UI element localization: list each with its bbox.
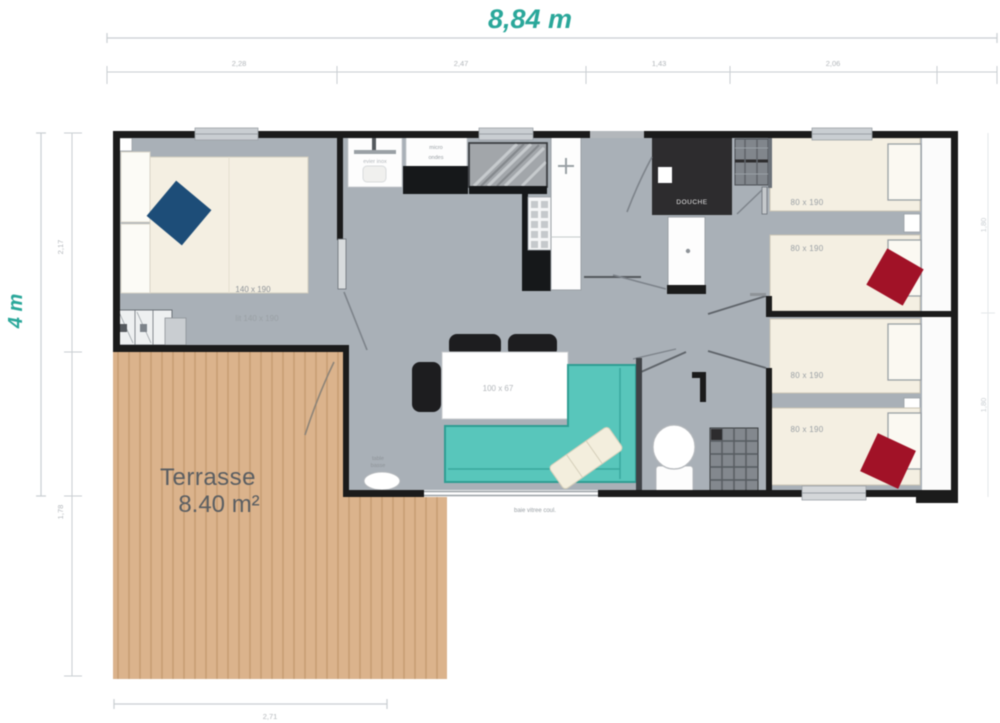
- svg-text:1,43: 1,43: [652, 59, 667, 68]
- svg-text:2,28: 2,28: [232, 59, 247, 68]
- svg-text:basse: basse: [371, 463, 386, 469]
- svg-text:80 x 190: 80 x 190: [790, 371, 823, 380]
- svg-text:80 x 190: 80 x 190: [790, 425, 823, 434]
- svg-text:2,47: 2,47: [454, 59, 469, 68]
- svg-text:2,06: 2,06: [826, 59, 841, 68]
- svg-text:80 x 190: 80 x 190: [790, 198, 823, 207]
- svg-text:table: table: [372, 456, 384, 462]
- svg-text:evier inox: evier inox: [363, 159, 387, 165]
- svg-text:1,78: 1,78: [56, 505, 65, 520]
- svg-text:100 x 67: 100 x 67: [483, 384, 514, 393]
- svg-text:8.40 m²: 8.40 m²: [178, 491, 259, 518]
- svg-text:lit 140 x 190: lit 140 x 190: [235, 314, 279, 323]
- svg-text:2,17: 2,17: [56, 240, 65, 255]
- svg-text:ondes: ondes: [429, 155, 444, 161]
- svg-text:4 m: 4 m: [5, 294, 27, 329]
- svg-text:80 x 190: 80 x 190: [790, 244, 823, 253]
- svg-text:2,71: 2,71: [263, 712, 278, 721]
- svg-text:DOUCHE: DOUCHE: [676, 199, 707, 206]
- svg-text:micro: micro: [429, 145, 442, 151]
- svg-text:1,80: 1,80: [979, 398, 988, 413]
- svg-text:140 x 190: 140 x 190: [235, 285, 271, 294]
- svg-text:Terrasse: Terrasse: [160, 464, 256, 491]
- svg-text:1,80: 1,80: [979, 218, 988, 233]
- svg-text:8,84 m: 8,84 m: [488, 4, 572, 34]
- svg-text:baie vitree coul.: baie vitree coul.: [514, 508, 556, 514]
